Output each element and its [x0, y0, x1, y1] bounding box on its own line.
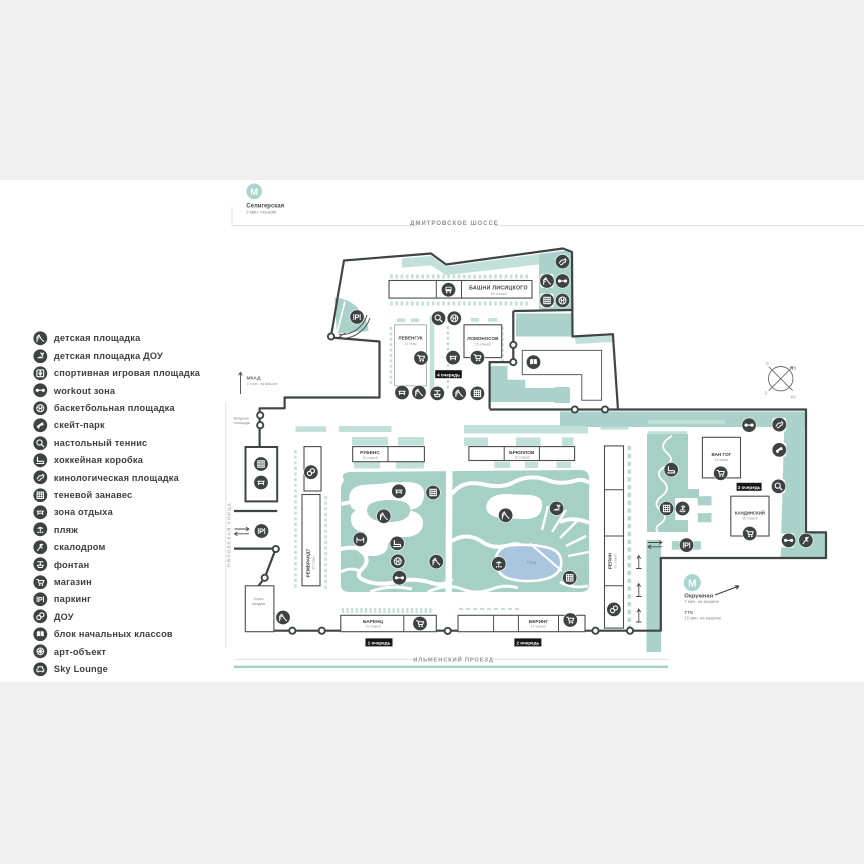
svg-text:ВАН ГОГ: ВАН ГОГ — [712, 452, 732, 457]
svg-text:ПЯЛОВСКАЯ УЛИЦА: ПЯЛОВСКАЯ УЛИЦА — [227, 502, 233, 567]
svg-text:3 очередь: 3 очередь — [738, 485, 761, 490]
svg-text:М: М — [250, 187, 258, 198]
svg-text:Ю: Ю — [791, 395, 796, 400]
svg-text:М: М — [688, 578, 696, 589]
svg-text:15 этажей: 15 этажей — [362, 456, 378, 460]
svg-text:РЕМБРАНДТ: РЕМБРАНДТ — [306, 548, 311, 577]
svg-text:21 этаж: 21 этаж — [404, 342, 417, 346]
svg-text:2 мин. пешком: 2 мин. пешком — [246, 210, 276, 215]
svg-text:10 мин. на машине: 10 мин. на машине — [247, 382, 279, 386]
svg-text:ЛЕВЕНГУК: ЛЕВЕНГУК — [398, 336, 422, 341]
svg-text:продаж: продаж — [252, 601, 266, 606]
svg-text:МКАД: МКАД — [247, 376, 262, 382]
svg-text:С: С — [766, 361, 769, 366]
svg-text:В: В — [794, 366, 797, 371]
svg-text:15 мин. на машине: 15 мин. на машине — [684, 616, 722, 621]
svg-text:Пруд: Пруд — [527, 560, 537, 565]
svg-text:площадь: площадь — [234, 420, 250, 425]
svg-text:29 этажей: 29 этажей — [614, 553, 618, 568]
svg-text:43 этажа: 43 этажа — [715, 458, 729, 462]
svg-text:36 этажей: 36 этажей — [742, 517, 758, 521]
svg-text:ЛОМОНОСОВ: ЛОМОНОСОВ — [467, 336, 499, 341]
svg-text:7 мин. на машине: 7 мин. на машине — [684, 599, 719, 604]
svg-text:15 этажей: 15 этажей — [365, 625, 381, 629]
svg-text:КАНДИНСКИЙ: КАНДИНСКИЙ — [735, 511, 765, 516]
svg-text:14 этажей: 14 этажей — [531, 625, 547, 629]
svg-text:33 этажа: 33 этажа — [312, 556, 316, 569]
svg-text:2 очередь: 2 очередь — [516, 641, 539, 646]
svg-text:З: З — [764, 390, 767, 395]
svg-text:15 этажей: 15 этажей — [475, 342, 491, 346]
svg-text:1 очередь: 1 очередь — [368, 641, 391, 646]
svg-text:15 этажей: 15 этажей — [514, 456, 530, 460]
svg-text:ДМИТРОВСКОЕ ШОССЕ: ДМИТРОВСКОЕ ШОССЕ — [410, 221, 499, 227]
svg-text:4 очередь: 4 очередь — [437, 372, 460, 377]
svg-text:РЕПИН: РЕПИН — [608, 552, 613, 569]
svg-text:39 этажей: 39 этажей — [491, 292, 507, 296]
svg-text:ИЛЬМЕНСКИЙ ПРОЕЗД: ИЛЬМЕНСКИЙ ПРОЕЗД — [413, 655, 494, 663]
svg-text:БАШНИ ЛИСИЦКОГО: БАШНИ ЛИСИЦКОГО — [469, 285, 528, 291]
